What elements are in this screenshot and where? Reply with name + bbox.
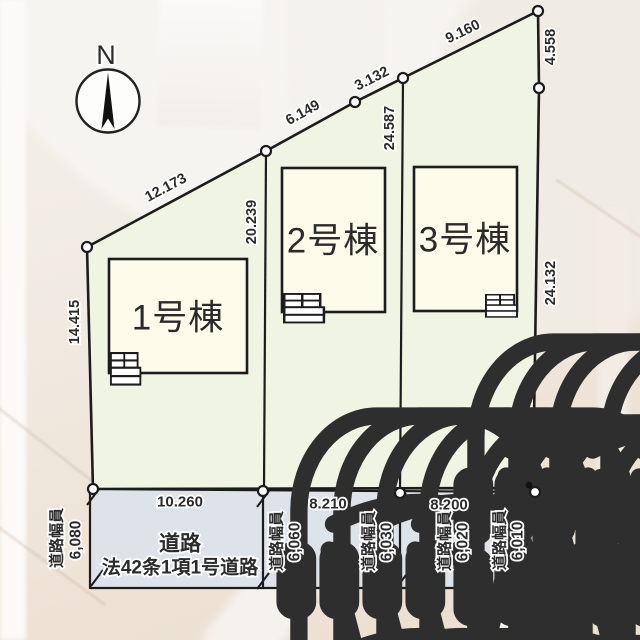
svg-text:6,010: 6,010	[510, 522, 527, 561]
dim-divider-1: 20.239	[244, 200, 260, 244]
dim-divider-2: 24.587	[382, 106, 398, 150]
svg-text:6,020: 6,020	[455, 523, 472, 562]
entrance-porch-icon	[284, 294, 324, 323]
site-plan-image: 1号棟 2号棟 3号棟	[0, 0, 640, 640]
entrance-porch-icon	[486, 295, 517, 317]
road-label-line1: 道路	[159, 532, 202, 556]
building-1-label: 1号棟	[132, 299, 224, 338]
svg-text:道路幅員: 道路幅員	[268, 511, 286, 571]
dim-left-side: 14.415	[67, 300, 83, 344]
site-plan-drawing: 1号棟 2号棟 3号棟	[0, 0, 640, 640]
svg-text:6,030: 6,030	[379, 523, 396, 562]
road-width-6080: 道路幅員 6,080	[48, 508, 85, 568]
dim-frontage-lot1: 10.260	[157, 494, 203, 511]
entrance-porch-icon	[111, 353, 140, 385]
parking-lot-3	[595, 343, 640, 640]
svg-text:道路幅員: 道路幅員	[436, 511, 454, 571]
dim-right-side: 24.132	[543, 261, 559, 305]
building-3-label: 3号棟	[419, 221, 511, 260]
dim-right-upper: 4.558	[543, 29, 559, 65]
svg-text:道路幅員: 道路幅員	[360, 511, 378, 571]
road-label-line2: 法42条1項1号道路	[102, 556, 259, 579]
dim-frontage-lot2: 8.210	[309, 496, 347, 513]
dim-frontage-lot3: 8.200	[430, 497, 468, 514]
svg-text:6,080: 6,080	[68, 521, 85, 560]
building-2-label: 2号棟	[287, 222, 379, 261]
svg-text:6,060: 6,060	[287, 523, 304, 562]
svg-text:道路幅員: 道路幅員	[491, 510, 509, 570]
svg-text:道路幅員: 道路幅員	[48, 508, 66, 568]
north-compass: N	[77, 40, 140, 133]
north-label: N	[96, 40, 116, 70]
